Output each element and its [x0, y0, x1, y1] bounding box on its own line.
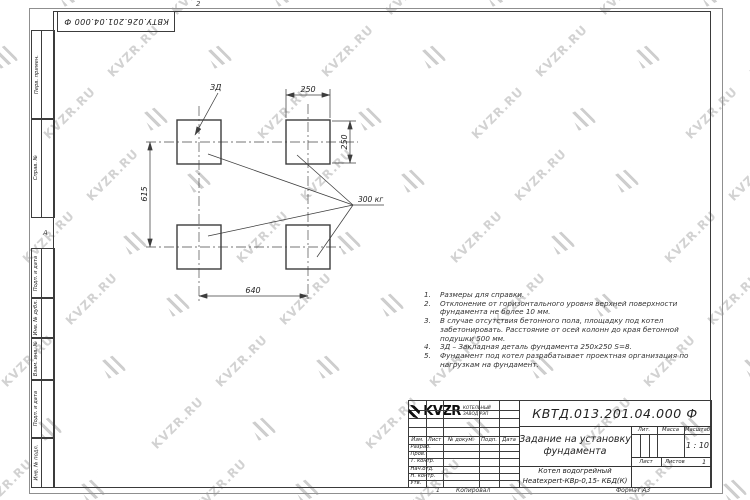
note-text: Отклонение от горизонтального уровня вер… [440, 300, 718, 317]
listov-value: 1 [702, 459, 706, 466]
margin-box-label: Перв. примен. [34, 56, 39, 95]
margin-box-label: Инв. № подл. [34, 445, 39, 481]
dimension-lines [150, 95, 350, 296]
masshtab-label: Масштаб [685, 428, 710, 433]
foundation-pads [177, 120, 330, 269]
row-prov: Пров. [411, 452, 426, 459]
grid-line [657, 426, 658, 457]
watermark-logo-icon [0, 39, 22, 73]
embed-detail-label: ЗД [210, 83, 221, 92]
title-block: Изм. Лист № докум. Подп. Дата Разраб. Пр… [408, 400, 712, 488]
note-item-3: 3.В случае отсутствия бетонного пола, пл… [424, 317, 718, 343]
listov-label: Листов [665, 460, 685, 465]
weight-label: 300 кг [358, 195, 383, 204]
note-item-2: 2.Отклонение от горизонтального уровня в… [424, 300, 718, 317]
margin-box-perv-primen: Перв. примен. [31, 30, 55, 120]
footer-format-label: Формат А3 [616, 488, 650, 494]
margin-box-divider [41, 338, 42, 380]
top-designation-text: КВТУ.026.201.04.000 Ф [64, 17, 169, 26]
grid-line [649, 434, 650, 457]
product-name: Котел водогрейный Heatexpert-КВр-0,15- К… [519, 466, 631, 487]
note-item-5: 5.Фундамент под котел разрабатывает прое… [424, 352, 718, 369]
list-label: Лист [639, 460, 652, 465]
dim-250-right: 250 [340, 134, 349, 149]
document-title: Задание на установку фундамента [519, 426, 631, 466]
margin-box-divider [41, 249, 42, 298]
col-list: Лист [428, 438, 441, 443]
kvzr-logo-icon [407, 405, 421, 419]
grid-line [409, 410, 519, 411]
note-text: В случае отсутствия бетонного пола, площ… [440, 317, 718, 343]
scale-value: 1 : 10 [684, 434, 711, 457]
leader-lines [195, 93, 384, 257]
note-number: 5. [424, 352, 440, 369]
margin-box-divider [41, 31, 42, 119]
dim-250-top: 250 [300, 85, 315, 94]
note-number: 2. [424, 300, 440, 317]
margin-box-label: Подп. и дата [34, 391, 39, 426]
extension-lines [286, 89, 356, 163]
margin-box-divider [41, 298, 42, 338]
drawing-sheet: KVZR.RUKVZR.RUKVZR.RUKVZR.RUKVZR.RUKVZR.… [0, 0, 750, 500]
watermark-logo-icon [738, 349, 750, 383]
margin-box-podp-data-2: Подп. и дата [31, 379, 55, 439]
watermark-text: KVZR.RU [726, 146, 750, 203]
col-izm: Изм. [411, 438, 423, 443]
watermark-logo-icon [0, 163, 1, 197]
col-data: Дата [502, 438, 516, 443]
grid-line [409, 418, 519, 419]
grid-line [661, 457, 662, 466]
margin-box-inv-podl: Инв. № подл. [31, 437, 55, 488]
center-lines [146, 104, 358, 302]
margin-box-label: Подп. и дата [34, 256, 39, 291]
col-podp: Подп. [481, 438, 497, 443]
row-nachotd: Нач.отд. [411, 466, 434, 473]
zone-marker-top: 2 [196, 0, 200, 8]
row-tkontr: Т. контр. [411, 459, 435, 466]
margin-box-vzam-inv: Взам. инв. № [31, 337, 55, 381]
margin-box-label: Взам. инв. № [34, 341, 39, 376]
foundation-plan-drawing: 250 250 615 640 ЗД 300 кг [130, 56, 410, 306]
margin-box-divider [41, 438, 42, 487]
margin-box-divider [41, 119, 42, 217]
row-razrab: Разраб. [411, 444, 431, 451]
grid-line [640, 434, 641, 457]
dim-615-left: 615 [140, 186, 149, 201]
margin-box-sprav-no: Справ. № [31, 118, 55, 218]
top-designation-box: КВТУ.026.201.04.000 Ф [57, 11, 175, 32]
watermark-text: KVZR.RU [0, 0, 12, 18]
footer-copied-label: Копировал [456, 488, 490, 494]
margin-box-label: Инв. № дубл. [34, 300, 39, 336]
notes-list: 1.Размеры для справки. 2.Отклонение от г… [424, 291, 718, 369]
dim-640-bottom: 640 [245, 286, 260, 295]
kvzr-logo-subtext: КОТЕЛЬНЫЙ ЗАВОД РЭП [463, 406, 491, 417]
document-designation: КВТД.013.201.04.000 Ф [519, 401, 711, 426]
zone-marker-left: А [43, 229, 48, 237]
lit-label: Лит. [638, 428, 650, 433]
massa-label: Масса [662, 428, 679, 433]
note-text: Фундамент под котел разрабатывает проект… [440, 352, 718, 369]
row-nkontr: Н. контр. [411, 473, 436, 480]
note-number: 3. [424, 317, 440, 343]
col-doc: № докум. [448, 438, 474, 443]
margin-box-divider [41, 380, 42, 438]
margin-box-inv-dubl: Инв. № дубл. [31, 297, 55, 339]
margin-box-label: Справ. № [34, 155, 39, 180]
grid-line [409, 427, 519, 428]
row-utv: Утв. [411, 480, 422, 487]
margin-box-podp-data-1: Подп. и дата [31, 248, 55, 299]
footer-sheet-number: 1 [436, 488, 440, 494]
